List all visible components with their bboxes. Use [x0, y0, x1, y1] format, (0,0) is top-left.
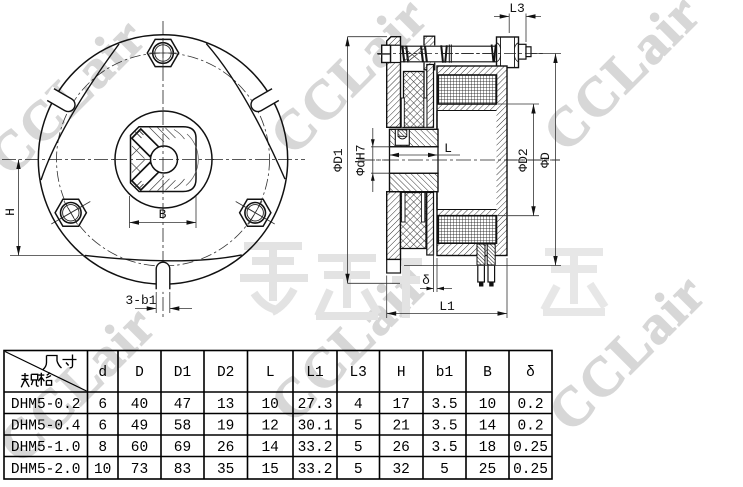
- svg-text:3.5: 3.5: [431, 397, 457, 413]
- svg-text:17: 17: [392, 397, 409, 413]
- svg-text:33.2: 33.2: [298, 440, 333, 456]
- svg-text:L3: L3: [509, 1, 525, 16]
- svg-text:14: 14: [479, 419, 496, 435]
- svg-text:d: d: [98, 365, 107, 381]
- svg-text:40: 40: [131, 397, 148, 413]
- svg-text:10: 10: [479, 397, 496, 413]
- svg-text:19: 19: [217, 419, 234, 435]
- svg-text:32: 32: [392, 462, 409, 478]
- svg-text:6: 6: [98, 397, 107, 413]
- svg-text:15: 15: [261, 462, 278, 478]
- svg-text:10: 10: [94, 462, 111, 478]
- svg-text:0.25: 0.25: [513, 462, 548, 478]
- svg-text:5: 5: [354, 462, 363, 478]
- svg-text:3.5: 3.5: [431, 419, 457, 435]
- svg-text:18: 18: [479, 440, 496, 456]
- svg-text:4: 4: [354, 397, 363, 413]
- svg-text:ΦdH7: ΦdH7: [354, 144, 369, 175]
- svg-text:83: 83: [174, 462, 191, 478]
- svg-text:35: 35: [217, 462, 234, 478]
- svg-text:10: 10: [261, 397, 278, 413]
- svg-text:L: L: [444, 141, 452, 156]
- svg-text:L1: L1: [306, 365, 323, 381]
- svg-text:6: 6: [98, 419, 107, 435]
- svg-text:ΦD: ΦD: [538, 152, 553, 168]
- svg-text:47: 47: [174, 397, 191, 413]
- svg-text:L3: L3: [349, 365, 366, 381]
- svg-text:L: L: [266, 365, 275, 381]
- svg-text:H: H: [3, 208, 18, 216]
- svg-text:49: 49: [131, 419, 148, 435]
- svg-text:12: 12: [261, 419, 278, 435]
- svg-text:D1: D1: [174, 365, 191, 381]
- svg-text:26: 26: [392, 440, 409, 456]
- svg-text:3-b1: 3-b1: [125, 293, 156, 308]
- svg-text:0.2: 0.2: [517, 397, 543, 413]
- svg-text:33.2: 33.2: [298, 462, 333, 478]
- svg-text:26: 26: [217, 440, 234, 456]
- svg-text:δ: δ: [422, 273, 430, 288]
- svg-text:58: 58: [174, 419, 191, 435]
- svg-text:b1: b1: [436, 365, 453, 381]
- svg-text:ΦD1: ΦD1: [331, 148, 346, 172]
- svg-text:21: 21: [392, 419, 409, 435]
- svg-text:0.25: 0.25: [513, 440, 548, 456]
- svg-text:DHM5-0.2: DHM5-0.2: [11, 397, 81, 413]
- svg-text:D: D: [135, 365, 144, 381]
- svg-text:B: B: [159, 207, 167, 222]
- svg-text:14: 14: [261, 440, 278, 456]
- svg-text:5: 5: [440, 462, 449, 478]
- svg-text:60: 60: [131, 440, 148, 456]
- svg-text:73: 73: [131, 462, 148, 478]
- svg-text:DHM5-0.4: DHM5-0.4: [11, 419, 81, 435]
- svg-text:5: 5: [354, 419, 363, 435]
- svg-text:DHM5-1.0: DHM5-1.0: [11, 440, 81, 456]
- svg-text:69: 69: [174, 440, 191, 456]
- svg-text:27.3: 27.3: [298, 397, 333, 413]
- svg-text:L1: L1: [439, 299, 455, 314]
- svg-text:5: 5: [354, 440, 363, 456]
- svg-text:30.1: 30.1: [298, 419, 333, 435]
- svg-text:H: H: [397, 365, 406, 381]
- svg-text:3.5: 3.5: [431, 440, 457, 456]
- svg-text:25: 25: [479, 462, 496, 478]
- svg-text:8: 8: [98, 440, 107, 456]
- svg-text:D2: D2: [217, 365, 234, 381]
- svg-text:0.2: 0.2: [517, 419, 543, 435]
- svg-text:13: 13: [217, 397, 234, 413]
- svg-text:DHM5-2.0: DHM5-2.0: [11, 462, 81, 478]
- svg-text:B: B: [483, 365, 492, 381]
- svg-text:ΦD2: ΦD2: [516, 148, 531, 171]
- svg-text:δ: δ: [526, 365, 535, 381]
